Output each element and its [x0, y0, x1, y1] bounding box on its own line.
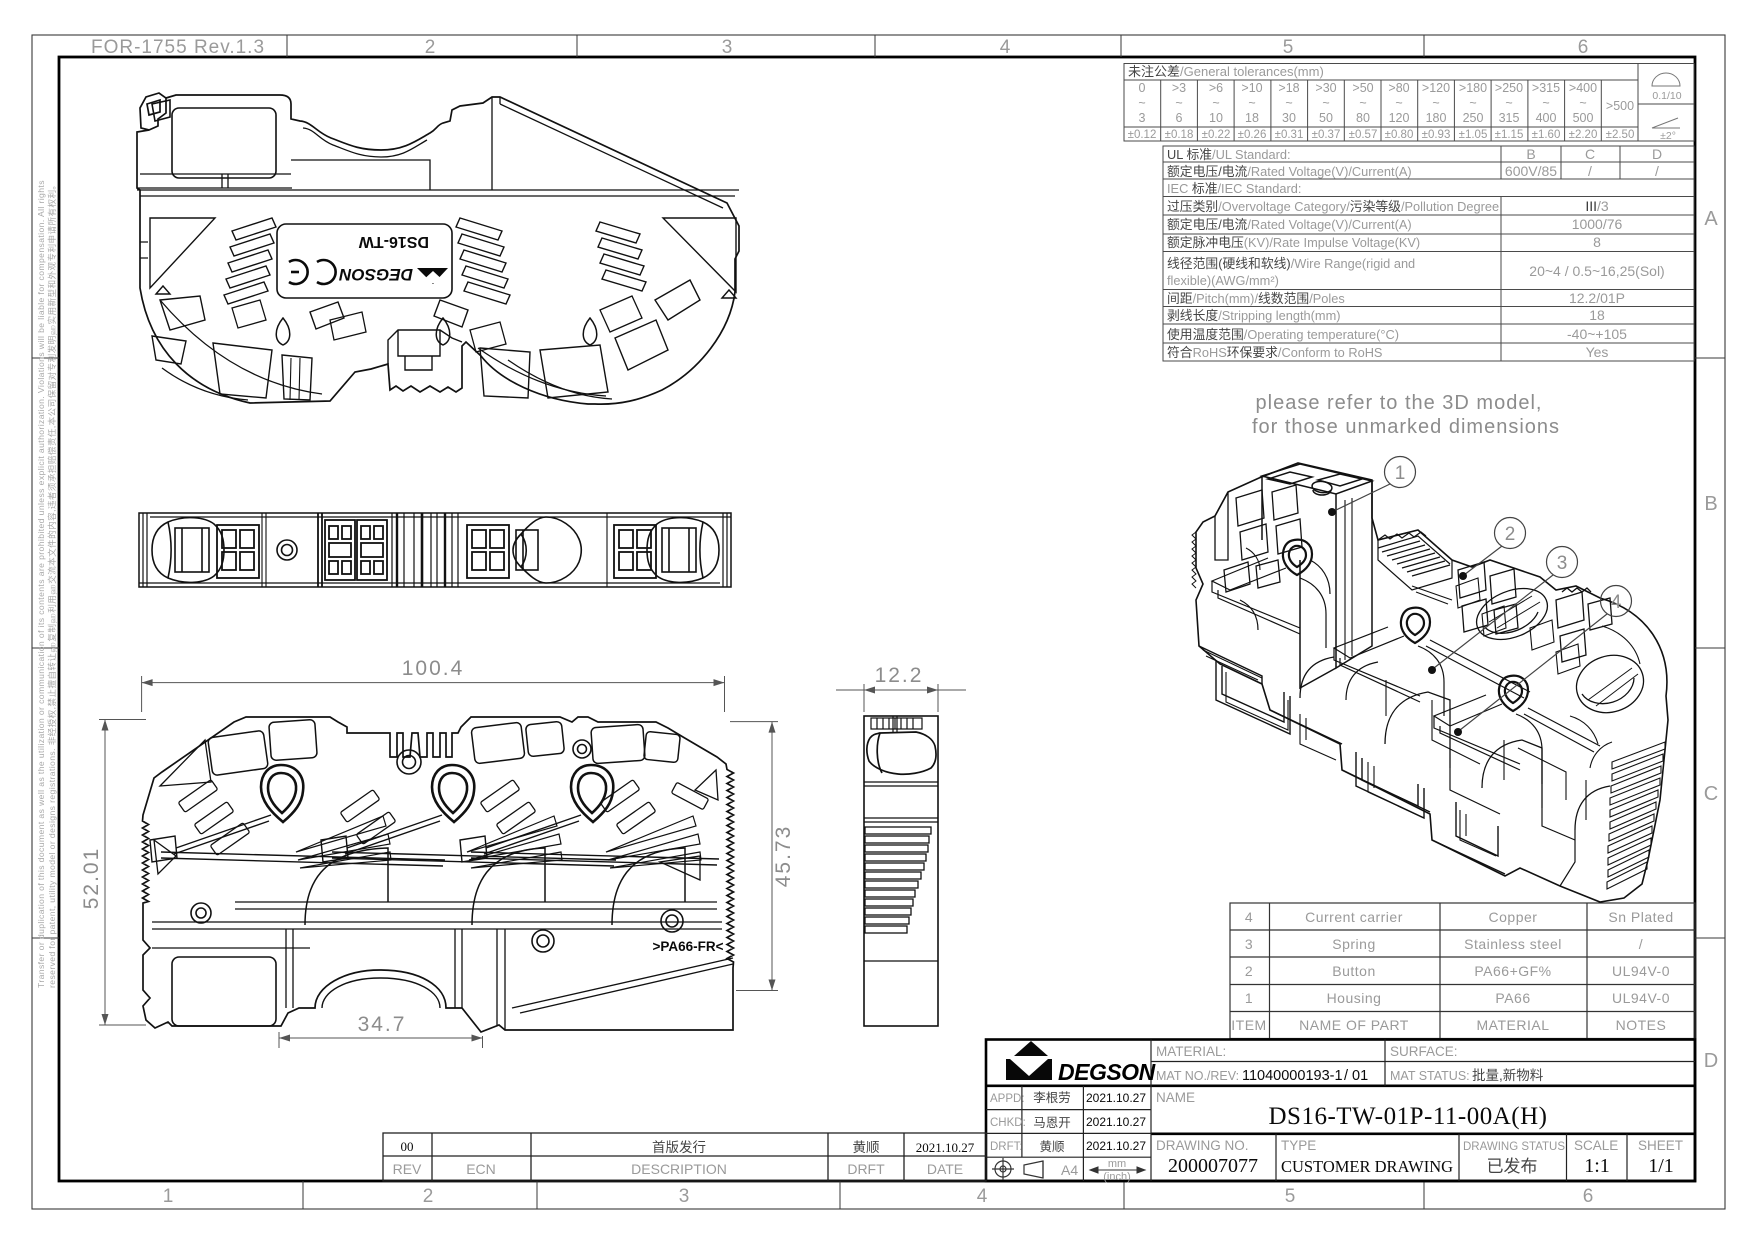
svg-text:±1.15: ±1.15	[1495, 129, 1524, 141]
svg-text:for those unmarked dimensions: for those unmarked dimensions	[1252, 416, 1560, 438]
svg-text:Transfer or duplication of thi: Transfer or duplication of this document…	[36, 180, 46, 988]
svg-text:线径范围(硬线和软线)/Wire Range(rigid a: 线径范围(硬线和软线)/Wire Range(rigid and	[1167, 256, 1415, 271]
svg-text:ITEM: ITEM	[1231, 1017, 1266, 1033]
svg-text:Sn Plated: Sn Plated	[1608, 909, 1673, 925]
svg-text:/: /	[1655, 163, 1659, 179]
svg-text:DATE: DATE	[927, 1161, 963, 1177]
svg-text:>10: >10	[1241, 81, 1262, 95]
svg-text:10: 10	[1209, 111, 1223, 125]
svg-text:MAT NO./REV:: MAT NO./REV:	[1156, 1069, 1239, 1083]
svg-text:~: ~	[1175, 96, 1182, 110]
svg-text:400: 400	[1536, 111, 1557, 125]
svg-text:PA66: PA66	[1495, 990, 1530, 1006]
svg-text:6: 6	[1578, 37, 1589, 58]
svg-text:已发布: 已发布	[1487, 1157, 1538, 1176]
svg-text:A4: A4	[1061, 1162, 1078, 1178]
svg-text:马恩开: 马恩开	[1033, 1116, 1071, 1130]
svg-text:120: 120	[1389, 111, 1410, 125]
svg-text:~: ~	[1542, 96, 1549, 110]
svg-text:4: 4	[1245, 909, 1253, 925]
svg-text:18: 18	[1245, 111, 1259, 125]
svg-text:>250: >250	[1495, 81, 1523, 95]
svg-text:34.7: 34.7	[358, 1013, 407, 1036]
svg-text:MAT STATUS:: MAT STATUS:	[1390, 1069, 1470, 1083]
svg-text:±1.05: ±1.05	[1459, 129, 1488, 141]
svg-text:4: 4	[1611, 592, 1622, 613]
svg-text:Current carrier: Current carrier	[1305, 909, 1403, 925]
svg-text:DEGSON: DEGSON	[1058, 1059, 1156, 1085]
svg-text:±1.60: ±1.60	[1532, 129, 1561, 141]
svg-text:±0.22: ±0.22	[1202, 129, 1231, 141]
svg-text:Housing: Housing	[1327, 990, 1382, 1006]
svg-text:180: 180	[1426, 111, 1447, 125]
svg-text:±0.31: ±0.31	[1275, 129, 1304, 141]
svg-text:A: A	[1704, 208, 1718, 230]
svg-text:C: C	[1585, 146, 1595, 162]
svg-text:~: ~	[1248, 96, 1255, 110]
svg-text:SCALE: SCALE	[1574, 1138, 1618, 1153]
svg-text:C: C	[1704, 783, 1718, 805]
svg-text:mm: mm	[1108, 1158, 1126, 1170]
svg-text:D: D	[1704, 1050, 1718, 1072]
svg-text:PA66+GF%: PA66+GF%	[1474, 963, 1551, 979]
svg-text:~: ~	[1395, 96, 1402, 110]
svg-text:剥线长度/Stripping length(mm): 剥线长度/Stripping length(mm)	[1167, 308, 1341, 323]
svg-text:>18: >18	[1278, 81, 1299, 95]
svg-text:额定脉冲电压(KV)/Rate Impulse Voltag: 额定脉冲电压(KV)/Rate Impulse Voltage(KV)	[1167, 235, 1420, 250]
svg-text:未注公差/General tolerances(mm): 未注公差/General tolerances(mm)	[1128, 64, 1324, 79]
svg-text:±0.80: ±0.80	[1385, 129, 1414, 141]
svg-text:4: 4	[1000, 37, 1011, 58]
svg-text:3: 3	[679, 1186, 690, 1207]
svg-text:4: 4	[977, 1186, 988, 1207]
svg-text:5: 5	[1283, 37, 1294, 58]
svg-text:-40~+105: -40~+105	[1567, 326, 1627, 342]
svg-text:2021.10.27: 2021.10.27	[1086, 1091, 1146, 1105]
svg-text:30: 30	[1282, 111, 1296, 125]
svg-text:6: 6	[1583, 1186, 1594, 1207]
svg-text:1:1: 1:1	[1584, 1155, 1610, 1177]
svg-text:NOTES: NOTES	[1616, 1017, 1667, 1033]
svg-text:APPD:: APPD:	[990, 1093, 1025, 1105]
svg-text:TYPE: TYPE	[1281, 1138, 1316, 1153]
svg-text:D: D	[1652, 146, 1662, 162]
svg-text:3: 3	[722, 37, 733, 58]
svg-text:首版发行: 首版发行	[652, 1140, 706, 1155]
svg-text:过压类别/Overvoltage Category/污染等级: 过压类别/Overvoltage Category/污染等级/Pollution…	[1167, 199, 1499, 214]
svg-text:>6: >6	[1209, 81, 1223, 95]
svg-text:III/3: III/3	[1585, 198, 1609, 214]
svg-text:2: 2	[423, 1186, 434, 1207]
svg-text:100.4: 100.4	[402, 657, 465, 680]
svg-text:250: 250	[1463, 111, 1484, 125]
svg-text:500: 500	[1573, 111, 1594, 125]
svg-text:>80: >80	[1388, 81, 1409, 95]
svg-text:>PA66-FR<: >PA66-FR<	[652, 939, 723, 954]
svg-text:间距/Pitch(mm)/线数范围/Poles: 间距/Pitch(mm)/线数范围/Poles	[1167, 291, 1345, 306]
svg-text:DRAWING NO.: DRAWING NO.	[1156, 1138, 1249, 1153]
svg-text:/ 01: / 01	[1344, 1068, 1368, 1084]
svg-text:~: ~	[1579, 96, 1586, 110]
svg-text:3: 3	[1245, 936, 1253, 952]
svg-text:UL 标准/UL Standard:: UL 标准/UL Standard:	[1167, 147, 1291, 162]
svg-text:REV: REV	[393, 1161, 422, 1177]
svg-text:~: ~	[1432, 96, 1439, 110]
svg-text:12.2: 12.2	[875, 664, 924, 687]
svg-text:FOR-1755 Rev.1.3: FOR-1755 Rev.1.3	[91, 37, 265, 58]
svg-text:(inch): (inch)	[1103, 1171, 1131, 1183]
svg-text:2021.10.27: 2021.10.27	[1086, 1115, 1146, 1129]
svg-text:~: ~	[1359, 96, 1366, 110]
svg-text:使用温度范围/Operating temperature(°: 使用温度范围/Operating temperature(°C)	[1167, 327, 1399, 342]
svg-text:2021.10.27: 2021.10.27	[1086, 1139, 1146, 1153]
svg-text:>315: >315	[1532, 81, 1560, 95]
svg-text:1: 1	[1245, 990, 1253, 1006]
svg-text:~: ~	[1212, 96, 1219, 110]
svg-text:1000/76: 1000/76	[1572, 216, 1623, 232]
svg-text:黄顺: 黄顺	[1039, 1140, 1064, 1154]
svg-text:3: 3	[1557, 553, 1568, 574]
svg-text:~: ~	[1322, 96, 1329, 110]
svg-text:18: 18	[1589, 307, 1605, 323]
svg-text:1: 1	[163, 1186, 174, 1207]
svg-text:>180: >180	[1459, 81, 1487, 95]
svg-text:20~4 / 0.5~16,25(Sol): 20~4 / 0.5~16,25(Sol)	[1529, 263, 1664, 279]
svg-text:DRFT: DRFT	[847, 1161, 885, 1177]
svg-text:SHEET: SHEET	[1638, 1138, 1683, 1153]
svg-text:00: 00	[401, 1139, 414, 1154]
svg-text:flexible)(AWG/mm²): flexible)(AWG/mm²)	[1167, 273, 1279, 288]
svg-text:额定电压/电流/Rated Voltage(V)/Curre: 额定电压/电流/Rated Voltage(V)/Current(A)	[1167, 217, 1412, 232]
svg-text:0.1/10: 0.1/10	[1652, 90, 1681, 102]
svg-text:please refer to the 3D model,: please refer to the 3D model,	[1256, 392, 1543, 414]
svg-text:MATERIAL:: MATERIAL:	[1156, 1044, 1226, 1059]
svg-text:2: 2	[1245, 963, 1253, 979]
svg-text:1: 1	[1395, 463, 1406, 484]
svg-text:>400: >400	[1569, 81, 1597, 95]
svg-text:DESCRIPTION: DESCRIPTION	[631, 1161, 727, 1177]
svg-text:200007077: 200007077	[1168, 1155, 1258, 1177]
svg-text:Button: Button	[1332, 963, 1375, 979]
svg-text:UL94V-0: UL94V-0	[1612, 963, 1670, 979]
svg-text:批量,新物料: 批量,新物料	[1472, 1068, 1544, 1083]
svg-text:~: ~	[1505, 96, 1512, 110]
svg-text:Yes: Yes	[1586, 344, 1609, 360]
svg-text:600V/85: 600V/85	[1505, 163, 1557, 179]
svg-text:MATERIAL: MATERIAL	[1477, 1017, 1550, 1033]
svg-text:~: ~	[1469, 96, 1476, 110]
svg-text:Copper: Copper	[1489, 909, 1538, 925]
svg-text:45.73: 45.73	[772, 825, 795, 888]
svg-text:NAME: NAME	[1156, 1090, 1195, 1105]
svg-text:±0.26: ±0.26	[1238, 129, 1267, 141]
svg-text:DS16-TW: DS16-TW	[358, 233, 429, 250]
svg-text:2: 2	[425, 37, 436, 58]
svg-text:DRFT:: DRFT:	[990, 1141, 1023, 1153]
svg-text:±0.12: ±0.12	[1128, 129, 1157, 141]
svg-text:±0.37: ±0.37	[1312, 129, 1341, 141]
svg-text:5: 5	[1285, 1186, 1296, 1207]
svg-text:3: 3	[1139, 111, 1146, 125]
svg-text:>30: >30	[1315, 81, 1336, 95]
svg-text:CHKD:: CHKD:	[990, 1117, 1026, 1129]
svg-text:2021.10.27: 2021.10.27	[916, 1140, 975, 1155]
svg-text:DEGSON: DEGSON	[339, 265, 413, 284]
svg-text:>120: >120	[1422, 81, 1450, 95]
svg-text:NAME OF PART: NAME OF PART	[1299, 1017, 1409, 1033]
svg-text:±2°: ±2°	[1660, 130, 1676, 142]
svg-text:CUSTOMER DRAWING: CUSTOMER DRAWING	[1281, 1157, 1453, 1176]
svg-text:DS16-TW-01P-11-00A(H): DS16-TW-01P-11-00A(H)	[1269, 1103, 1548, 1130]
svg-text:额定电压/电流/Rated Voltage(V)/Curre: 额定电压/电流/Rated Voltage(V)/Current(A)	[1167, 164, 1412, 179]
svg-text:黄顺: 黄顺	[853, 1140, 880, 1155]
svg-text:ECN: ECN	[466, 1161, 496, 1177]
svg-text:2: 2	[1505, 524, 1516, 545]
svg-text:IEC 标准/IEC Standard:: IEC 标准/IEC Standard:	[1167, 181, 1301, 196]
svg-text:±2.20: ±2.20	[1569, 129, 1598, 141]
svg-text:>3: >3	[1172, 81, 1186, 95]
svg-text:>500: >500	[1606, 99, 1634, 113]
svg-text:80: 80	[1356, 111, 1370, 125]
svg-text:±2.50: ±2.50	[1606, 129, 1635, 141]
svg-text:SURFACE:: SURFACE:	[1390, 1044, 1458, 1059]
svg-text:±0.18: ±0.18	[1165, 129, 1194, 141]
svg-text:8: 8	[1593, 234, 1601, 250]
svg-text:UL94V-0: UL94V-0	[1612, 990, 1670, 1006]
svg-text:>50: >50	[1352, 81, 1373, 95]
svg-text:DRAWING STATUS: DRAWING STATUS	[1463, 1141, 1565, 1153]
svg-text:50: 50	[1319, 111, 1333, 125]
svg-text:12.2/01P: 12.2/01P	[1569, 290, 1625, 306]
svg-text:52.01: 52.01	[80, 847, 103, 910]
svg-text:李根劳: 李根劳	[1033, 1090, 1071, 1105]
svg-text:6: 6	[1176, 111, 1183, 125]
svg-text:±0.93: ±0.93	[1422, 129, 1451, 141]
svg-text:/: /	[1639, 936, 1643, 952]
svg-text:±0.57: ±0.57	[1349, 129, 1378, 141]
svg-text:Spring: Spring	[1332, 936, 1375, 952]
svg-text:0: 0	[1139, 81, 1146, 95]
svg-text:reserved for patent, utility m: reserved for patent, utility model or de…	[46, 181, 57, 988]
svg-text:315: 315	[1499, 111, 1520, 125]
svg-text:B: B	[1704, 493, 1717, 515]
svg-text:Stainless steel: Stainless steel	[1464, 936, 1562, 952]
svg-text:~: ~	[1138, 96, 1145, 110]
svg-text:/: /	[1588, 163, 1592, 179]
svg-text:符合RoHS环保要求/Conform to RoHS: 符合RoHS环保要求/Conform to RoHS	[1167, 345, 1382, 360]
svg-text:1/1: 1/1	[1648, 1155, 1674, 1177]
svg-text:11040000193-1: 11040000193-1	[1242, 1068, 1343, 1084]
svg-text:B: B	[1526, 146, 1535, 162]
svg-text:~: ~	[1285, 96, 1292, 110]
